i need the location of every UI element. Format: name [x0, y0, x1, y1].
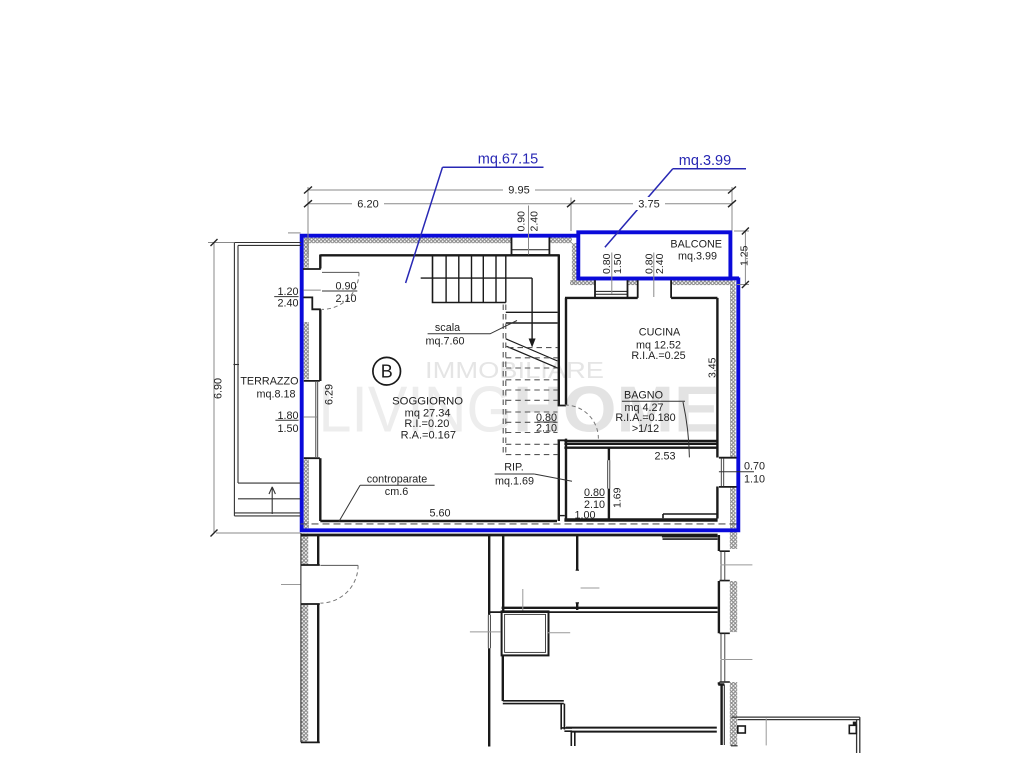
svg-text:1.50: 1.50: [277, 423, 298, 435]
svg-text:R.I.A.=0.25: R.I.A.=0.25: [631, 350, 685, 362]
svg-text:2.40: 2.40: [277, 298, 298, 310]
svg-text:6.29: 6.29: [324, 384, 336, 405]
svg-text:1.00: 1.00: [574, 510, 595, 522]
svg-text:6.20: 6.20: [357, 198, 378, 210]
svg-text:mq.1.69: mq.1.69: [495, 476, 534, 488]
svg-text:1.80: 1.80: [277, 410, 298, 422]
svg-text:CUCINA: CUCINA: [639, 327, 681, 339]
svg-text:1.50: 1.50: [612, 253, 624, 274]
svg-text:2.53: 2.53: [654, 451, 675, 463]
svg-text:TERRAZZO: TERRAZZO: [240, 376, 298, 388]
svg-text:scala: scala: [435, 322, 460, 334]
svg-text:9.95: 9.95: [508, 185, 529, 197]
svg-text:mq.3.99: mq.3.99: [678, 251, 717, 263]
svg-text:BALCONE: BALCONE: [670, 239, 722, 251]
svg-text:2.40: 2.40: [654, 253, 666, 274]
svg-text:B: B: [381, 362, 393, 382]
svg-text:mq.7.60: mq.7.60: [425, 336, 464, 348]
svg-text:0.80: 0.80: [584, 487, 605, 499]
svg-text:5.60: 5.60: [429, 508, 450, 520]
svg-text:R.I.=0.20: R.I.=0.20: [404, 418, 449, 430]
svg-text:mq.3.99: mq.3.99: [679, 153, 731, 169]
svg-text:>1/12: >1/12: [632, 423, 659, 435]
svg-text:SOGGIORNO: SOGGIORNO: [392, 396, 463, 408]
svg-text:6.90: 6.90: [213, 378, 225, 399]
svg-text:0.90: 0.90: [516, 211, 528, 232]
svg-text:0.70: 0.70: [744, 461, 765, 473]
svg-text:R.A.=0.167: R.A.=0.167: [401, 430, 456, 442]
svg-text:BAGNO: BAGNO: [624, 390, 663, 402]
svg-text:1.25: 1.25: [739, 245, 751, 266]
svg-text:1.20: 1.20: [277, 286, 298, 298]
svg-text:2.10: 2.10: [536, 423, 557, 435]
svg-text:controparate: controparate: [367, 474, 428, 486]
svg-text:RIP.: RIP.: [504, 462, 524, 474]
svg-text:1.10: 1.10: [744, 474, 765, 486]
svg-text:cm.6: cm.6: [385, 486, 408, 498]
svg-text:HOME: HOME: [513, 373, 720, 446]
svg-text:3.45: 3.45: [707, 357, 719, 378]
svg-text:mq.8.18: mq.8.18: [256, 389, 295, 401]
svg-text:2.40: 2.40: [529, 211, 541, 232]
svg-text:0.90: 0.90: [335, 281, 356, 293]
svg-text:3.75: 3.75: [638, 198, 659, 210]
svg-text:mq.67.15: mq.67.15: [478, 152, 538, 168]
svg-text:2.10: 2.10: [335, 293, 356, 305]
svg-text:1.69: 1.69: [611, 487, 623, 508]
